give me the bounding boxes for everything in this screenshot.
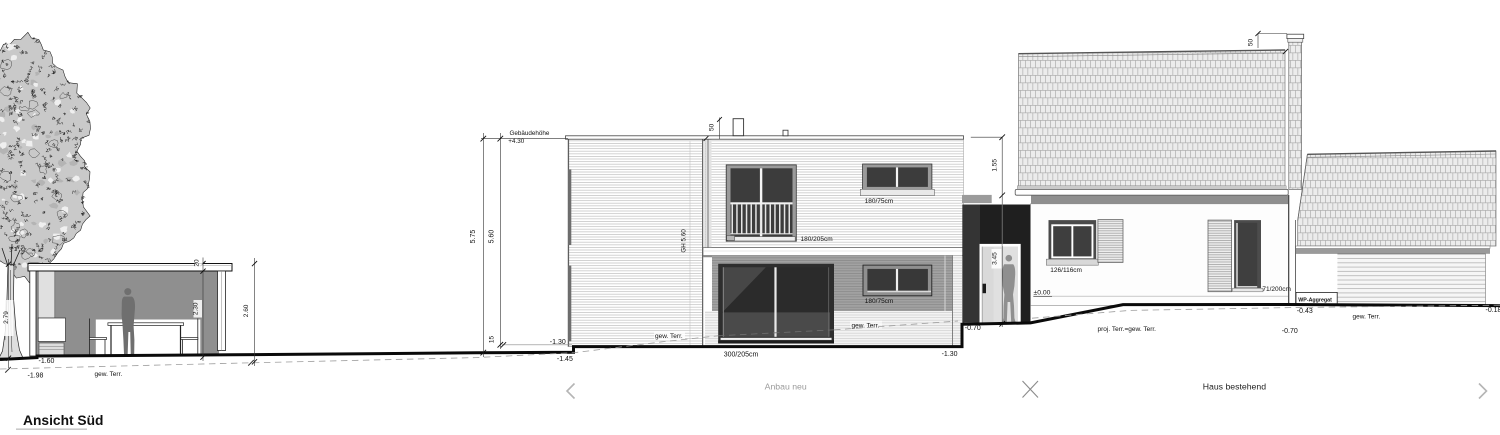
svg-text:Ansicht Süd: Ansicht Süd bbox=[23, 413, 103, 428]
svg-text:5.60: 5.60 bbox=[489, 230, 496, 244]
svg-text:gew. Terr.: gew. Terr. bbox=[95, 371, 123, 378]
svg-text:50: 50 bbox=[708, 123, 715, 131]
svg-text:gew. Terr.: gew. Terr. bbox=[655, 333, 683, 340]
svg-text:2.30: 2.30 bbox=[193, 302, 200, 315]
svg-text:gew. Terr.: gew. Terr. bbox=[852, 322, 880, 329]
svg-text:GH 5.60: GH 5.60 bbox=[680, 229, 687, 253]
svg-text:proj. Terr.=gew. Terr.: proj. Terr.=gew. Terr. bbox=[1098, 326, 1157, 333]
svg-text:180/205cm: 180/205cm bbox=[801, 236, 833, 243]
svg-text:180/75cm: 180/75cm bbox=[865, 298, 894, 305]
svg-text:126/116cm: 126/116cm bbox=[1050, 267, 1082, 274]
svg-text:Anbau neu: Anbau neu bbox=[765, 381, 807, 391]
svg-text:±0.00: ±0.00 bbox=[1034, 290, 1051, 297]
svg-text:-1.60: -1.60 bbox=[39, 358, 55, 365]
svg-text:-1.30: -1.30 bbox=[550, 339, 566, 346]
svg-text:50: 50 bbox=[1248, 39, 1255, 47]
svg-text:-0.70: -0.70 bbox=[1282, 328, 1298, 335]
svg-text:-0.18: -0.18 bbox=[1486, 307, 1500, 314]
svg-text:-1.45: -1.45 bbox=[557, 356, 573, 363]
svg-text:1.55: 1.55 bbox=[991, 159, 998, 172]
svg-text:5.75: 5.75 bbox=[470, 230, 477, 244]
svg-text:-0.70: -0.70 bbox=[965, 325, 981, 332]
svg-text:2.79: 2.79 bbox=[3, 311, 10, 324]
svg-text:-1.98: -1.98 bbox=[28, 373, 44, 380]
svg-text:3.45: 3.45 bbox=[991, 252, 998, 265]
svg-text:WP-Aggregat: WP-Aggregat bbox=[1298, 297, 1332, 303]
svg-text:Gebäudehöhe: Gebäudehöhe bbox=[510, 130, 550, 137]
svg-text:gew. Terr.: gew. Terr. bbox=[1353, 314, 1381, 321]
svg-text:-0.43: -0.43 bbox=[1297, 308, 1313, 315]
svg-text:-1.30: -1.30 bbox=[942, 351, 958, 358]
svg-text:15: 15 bbox=[489, 336, 496, 344]
svg-text:300/205cm: 300/205cm bbox=[724, 352, 759, 359]
svg-text:71/200cm: 71/200cm bbox=[1262, 286, 1291, 293]
svg-text:2.60: 2.60 bbox=[243, 304, 250, 317]
svg-text:Haus bestehend: Haus bestehend bbox=[1203, 381, 1266, 391]
svg-text:20: 20 bbox=[194, 259, 201, 267]
svg-text:+4.30: +4.30 bbox=[508, 138, 524, 145]
svg-text:180/75cm: 180/75cm bbox=[865, 198, 894, 205]
